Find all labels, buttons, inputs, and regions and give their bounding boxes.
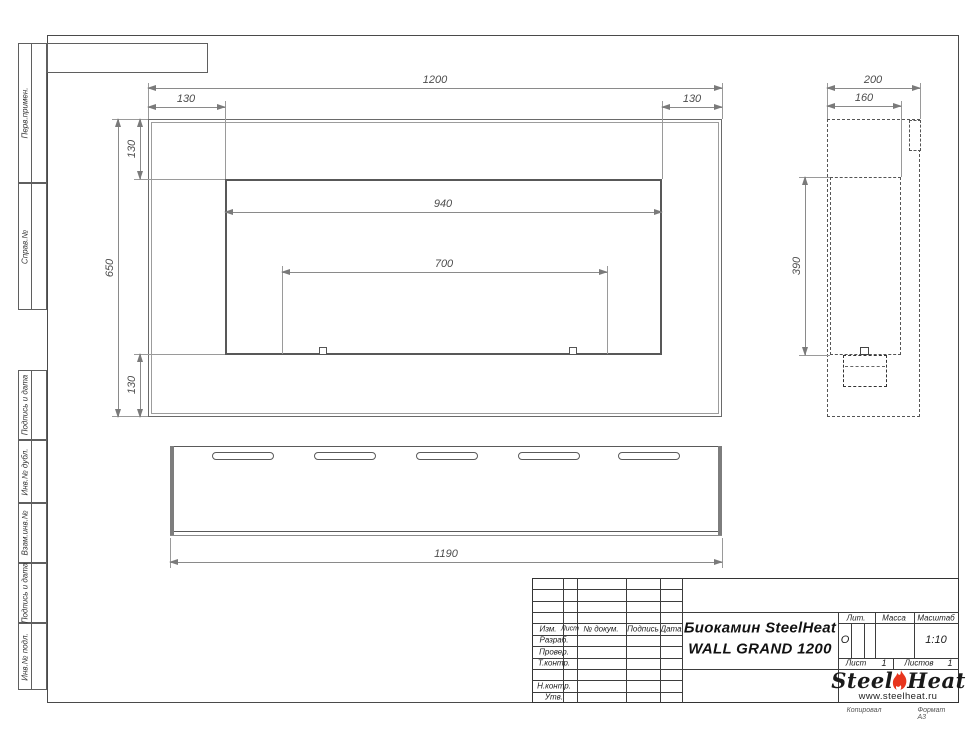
logo-text-heat: Heat — [907, 668, 966, 693]
dimension-value-1200: 1200 — [423, 74, 447, 86]
title-block-line — [875, 612, 876, 658]
steelheat-logo: Steel Heat — [838, 667, 959, 693]
dimension-value-160: 160 — [855, 92, 873, 104]
row-label-prover: Провер. — [539, 648, 569, 657]
side-view-burner-box — [843, 355, 887, 387]
title-block-line — [577, 578, 578, 703]
dimension-line-130-right — [662, 107, 722, 108]
dimension-value-940: 940 — [434, 198, 452, 210]
lit-value: О — [841, 634, 850, 646]
extension-line — [134, 354, 225, 355]
vent-slot-5 — [618, 452, 680, 460]
column-header-doc: № докум. — [583, 625, 618, 634]
dimension-line-1200 — [148, 88, 722, 89]
margin-cell-podpis-data-2: Подпись и дата — [18, 563, 47, 623]
dimension-line-700 — [282, 272, 607, 273]
burner-mount-tab-right — [569, 347, 577, 355]
title-block-line — [660, 578, 661, 703]
margin-cell-divider — [31, 564, 32, 622]
vent-slot-3 — [416, 452, 478, 460]
side-view-burner-inner-line — [845, 366, 885, 367]
dimension-value-650: 650 — [104, 259, 116, 277]
margin-cell-podpis-data-1: Подпись и дата — [18, 370, 47, 440]
scale-value: 1:10 — [925, 634, 946, 646]
dimension-line-200 — [827, 88, 920, 89]
title-block-line — [532, 601, 682, 602]
margin-cell-divider — [31, 184, 32, 309]
title-block-line — [851, 623, 852, 658]
title-block-line — [864, 623, 865, 658]
footer-copied-label: Копировал — [847, 707, 882, 714]
scale-label: Масштаб — [917, 614, 954, 623]
title-block-line — [682, 578, 683, 703]
extension-line — [134, 179, 225, 180]
dimension-line-940 — [225, 212, 662, 213]
side-view-top-notch — [909, 120, 921, 151]
vent-slot-1 — [212, 452, 274, 460]
logo-text-steel: Steel — [831, 668, 893, 693]
dimension-value-130-right: 130 — [683, 93, 701, 105]
title-block-line — [532, 589, 682, 590]
margin-cell-divider — [31, 504, 32, 562]
title-block-line — [914, 612, 915, 658]
dimension-value-130-bottom: 130 — [126, 376, 138, 394]
margin-label: Подпись и дата — [21, 375, 30, 436]
dimension-line-130-top — [140, 119, 141, 179]
drawing-sheet: Перв.примен. Справ.№ Подпись и дата Инв.… — [0, 0, 970, 749]
row-label-tkontr: Т.контр. — [538, 659, 570, 668]
dimension-line-1190 — [170, 562, 722, 563]
top-left-stamp-cell — [47, 43, 208, 73]
bottom-view-left-flange — [170, 446, 174, 536]
dimension-value-700: 700 — [435, 258, 453, 270]
margin-cell-vzam-inv: Взам.инв.№ — [18, 503, 47, 563]
margin-label: Инв.№ дубл. — [21, 448, 30, 495]
row-label-utv: Утв. — [545, 693, 563, 702]
margin-cell-perv-primen: Перв.примен. — [18, 43, 47, 183]
dimension-line-130-bottom — [140, 354, 141, 417]
dimension-value-130-left: 130 — [177, 93, 195, 105]
margin-cell-inv-dubl: Инв.№ дубл. — [18, 440, 47, 503]
dimension-value-1190: 1190 — [434, 548, 458, 560]
side-view-burner-tab — [860, 347, 869, 355]
product-title-line1: Биокамин SteelHeat — [684, 620, 836, 637]
dimension-line-390 — [805, 177, 806, 355]
product-title-line2: WALL GRAND 1200 — [688, 641, 831, 658]
margin-label: Справ.№ — [21, 229, 30, 263]
margin-cell-divider — [31, 624, 32, 689]
title-block-line — [838, 623, 959, 624]
burner-mount-tab-left — [319, 347, 327, 355]
margin-label: Перв.примен. — [21, 88, 30, 139]
dimension-value-390: 390 — [791, 257, 803, 275]
extension-line — [225, 101, 226, 179]
vent-slot-2 — [314, 452, 376, 460]
margin-label: Взам.инв.№ — [21, 510, 30, 555]
dimension-line-650 — [118, 119, 119, 417]
margin-label: Инв.№ подл. — [21, 633, 30, 680]
vent-slot-4 — [518, 452, 580, 460]
margin-cell-divider — [31, 441, 32, 502]
side-view-firebox-depth — [830, 177, 901, 355]
footer-format-label: Формат А3 — [918, 707, 953, 721]
mass-label: Масса — [882, 614, 906, 623]
extension-line — [607, 266, 608, 354]
dimension-line-130-left — [148, 107, 225, 108]
bottom-view-bend-line — [170, 535, 722, 536]
column-header-list: Лист — [561, 626, 579, 633]
margin-cell-sprav-no: Справ.№ — [18, 183, 47, 310]
row-label-razrab: Разраб. — [540, 636, 569, 645]
row-label-nkontr: Н.контр. — [537, 682, 571, 691]
margin-cell-inv-podl: Инв.№ подл. — [18, 623, 47, 690]
dimension-line-160 — [827, 106, 901, 107]
dimension-value-200: 200 — [864, 74, 882, 86]
dimension-value-130-top: 130 — [126, 140, 138, 158]
margin-cell-divider — [31, 371, 32, 439]
extension-line — [901, 101, 902, 177]
bottom-view-right-flange — [718, 446, 722, 536]
column-header-sign: Подпись — [627, 625, 659, 634]
title-block-line — [626, 578, 627, 703]
margin-label: Подпись и дата — [21, 563, 30, 624]
extension-line — [662, 101, 663, 179]
logo-url: www.steelheat.ru — [859, 691, 938, 702]
column-header-izm: Изм. — [539, 625, 556, 634]
extension-line — [282, 266, 283, 354]
lit-label: Лит. — [847, 614, 866, 623]
column-header-date: Дата — [660, 625, 681, 634]
margin-cell-divider — [31, 44, 32, 182]
